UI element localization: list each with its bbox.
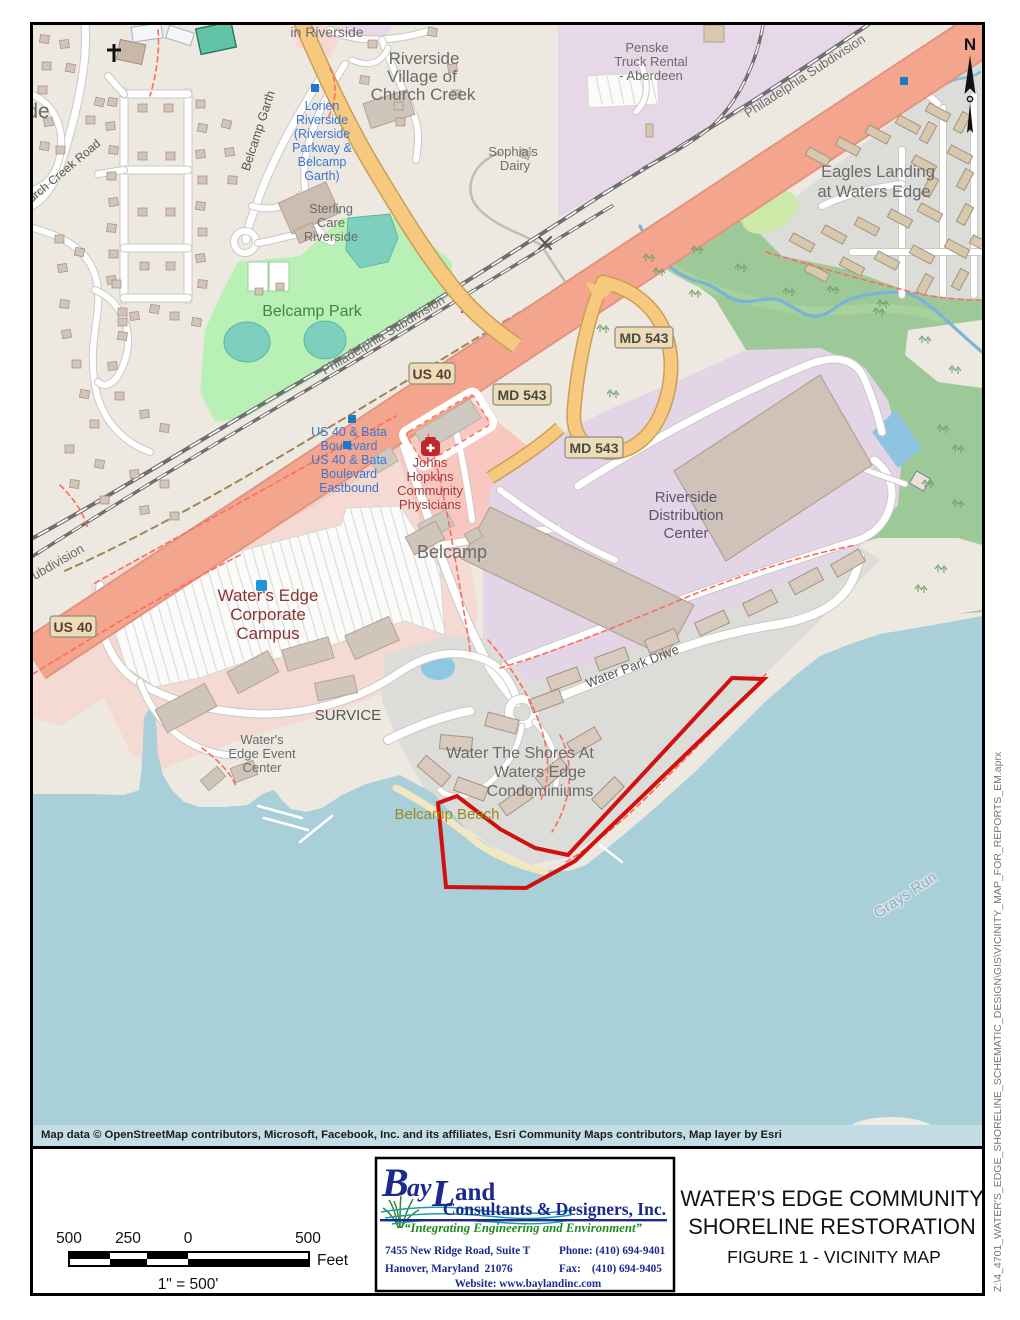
svg-text:Eagles Landing: Eagles Landing: [821, 163, 935, 181]
svg-text:Center: Center: [663, 525, 708, 542]
svg-text:FIGURE 1 - VICINITY MAP: FIGURE 1 - VICINITY MAP: [727, 1247, 941, 1267]
svg-text:Eastbound: Eastbound: [319, 481, 379, 495]
svg-text:Boulevard: Boulevard: [321, 467, 377, 481]
svg-text:Lorien: Lorien: [305, 99, 340, 113]
svg-text:ay: ay: [407, 1173, 432, 1202]
svg-text:Phone: (410) 694-9401: Phone: (410) 694-9401: [559, 1245, 666, 1257]
svg-text:500: 500: [295, 1230, 321, 1247]
svg-text:SHORELINE RESTORATION: SHORELINE RESTORATION: [688, 1214, 975, 1239]
svg-text:Hopkins: Hopkins: [407, 469, 454, 484]
svg-text:MD 543: MD 543: [569, 440, 618, 456]
svg-text:MD 543: MD 543: [497, 387, 546, 403]
svg-text:Belcamp: Belcamp: [417, 542, 487, 562]
svg-text:Hanover, Maryland 21076: Hanover, Maryland 21076: [385, 1263, 513, 1275]
svg-text:Sterling: Sterling: [309, 201, 353, 216]
svg-text:Website: www.baylandinc.com: Website: www.baylandinc.com: [455, 1278, 602, 1290]
svg-text:Physicians: Physicians: [399, 497, 462, 512]
svg-text:Waters Edge: Waters Edge: [494, 764, 586, 781]
svg-text:Riverside: Riverside: [304, 229, 358, 244]
svg-text:(Riverside: (Riverside: [294, 127, 350, 141]
svg-text:Water's Edge: Water's Edge: [218, 586, 319, 605]
svg-text:250: 250: [115, 1230, 141, 1247]
svg-text:Village of: Village of: [387, 67, 457, 86]
svg-text:SURVICE: SURVICE: [315, 707, 381, 724]
svg-text:Distribution: Distribution: [648, 507, 723, 524]
svg-text:- Aberdeen: - Aberdeen: [619, 68, 683, 83]
svg-text:Parkway &: Parkway &: [292, 141, 352, 155]
svg-text:Riverside: Riverside: [389, 49, 460, 68]
svg-text:Campus: Campus: [236, 624, 299, 643]
svg-text:Water's: Water's: [240, 732, 284, 747]
svg-text:Edge Event: Edge Event: [228, 746, 296, 761]
svg-text:Water The Shores At: Water The Shores At: [446, 745, 594, 762]
svg-text:Truck Rental: Truck Rental: [614, 54, 687, 69]
svg-text:Johns: Johns: [413, 455, 448, 470]
svg-text:B: B: [381, 1160, 409, 1205]
svg-text:Fax: (410) 694-9405: Fax: (410) 694-9405: [559, 1263, 662, 1275]
svg-text:WATER'S EDGE COMMUNITY: WATER'S EDGE COMMUNITY: [680, 1186, 982, 1211]
svg-text:at Waters Edge: at Waters Edge: [817, 183, 930, 201]
svg-text:Corporate: Corporate: [230, 605, 306, 624]
svg-text:Penske: Penske: [625, 40, 668, 55]
svg-text:US 40 & Bata: US 40 & Bata: [311, 425, 387, 439]
svg-text:Riverside: Riverside: [655, 489, 718, 506]
svg-text:Sophia's: Sophia's: [488, 144, 538, 159]
svg-text:Belcamp Beach: Belcamp Beach: [394, 806, 499, 823]
svg-text:US 40: US 40: [54, 619, 93, 635]
svg-text:“Integrating Engineering and E: “Integrating Engineering and Environment…: [404, 1221, 642, 1235]
svg-text:Feet: Feet: [317, 1252, 349, 1269]
svg-text:in Riverside: in Riverside: [290, 25, 363, 40]
svg-text:US 40: US 40: [413, 366, 452, 382]
svg-text:Dairy: Dairy: [500, 158, 531, 173]
svg-text:Center: Center: [242, 760, 282, 775]
svg-text:MD 543: MD 543: [619, 330, 668, 346]
svg-text:Consultants & Designers, Inc.: Consultants & Designers, Inc.: [443, 1199, 666, 1219]
svg-text:de: de: [33, 100, 50, 123]
svg-text:Condominiums: Condominiums: [487, 783, 594, 800]
svg-text:7455 New Ridge Road, Suite T: 7455 New Ridge Road, Suite T: [385, 1245, 531, 1257]
svg-text:Community: Community: [397, 483, 463, 498]
svg-text:Care: Care: [317, 215, 345, 230]
svg-text:Garth): Garth): [304, 169, 339, 183]
svg-text:Riverside: Riverside: [296, 113, 348, 127]
svg-text:Belcamp: Belcamp: [298, 155, 347, 169]
svg-text:US 40 & Bata: US 40 & Bata: [311, 453, 387, 467]
svg-text:1" = 500': 1" = 500': [158, 1276, 219, 1293]
svg-text:500: 500: [56, 1230, 82, 1247]
svg-text:0: 0: [184, 1230, 193, 1247]
svg-text:Belcamp Park: Belcamp Park: [262, 303, 363, 320]
svg-text:N: N: [964, 35, 976, 54]
svg-text:Church Creek: Church Creek: [371, 85, 476, 104]
